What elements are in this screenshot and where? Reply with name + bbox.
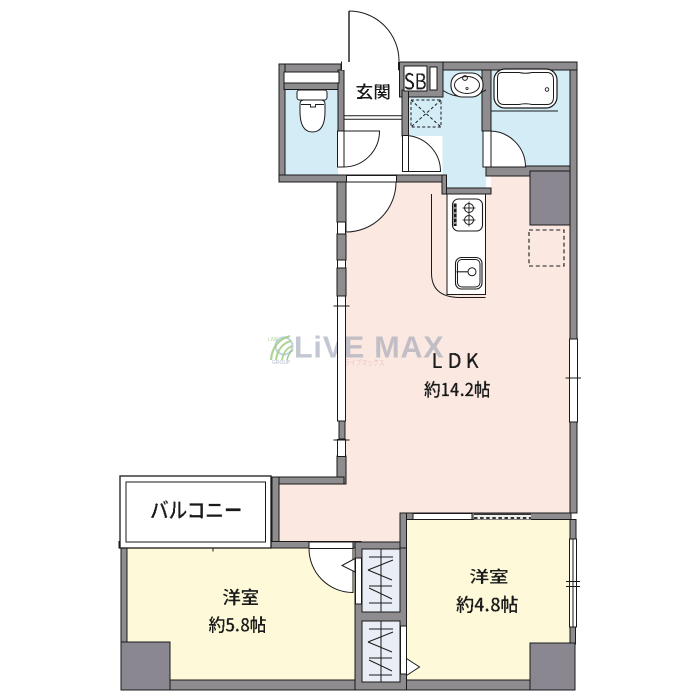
svg-text:GROUP: GROUP — [272, 360, 291, 366]
svg-text:LiVE: LiVE — [268, 337, 279, 343]
svg-text:LiVE MAX: LiVE MAX — [294, 331, 444, 365]
